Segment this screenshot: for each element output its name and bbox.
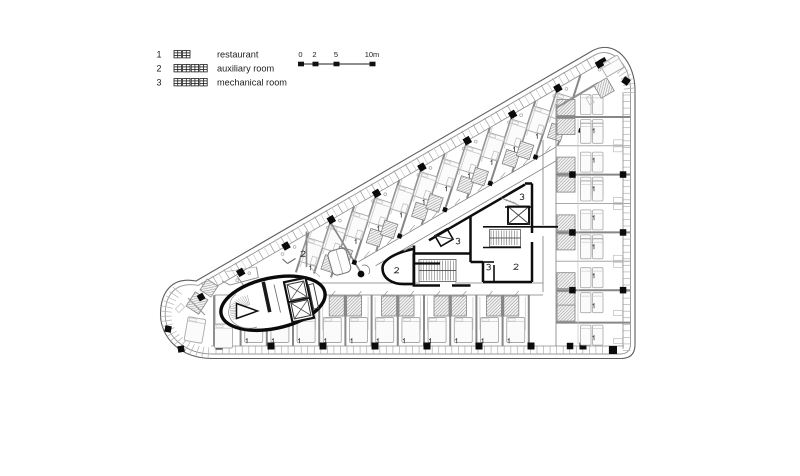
svg-text:mechanical room: mechanical room xyxy=(217,78,287,88)
svg-text:1: 1 xyxy=(156,50,161,60)
svg-text:restaurant: restaurant xyxy=(217,50,259,60)
svg-text:2: 2 xyxy=(312,50,316,59)
svg-text:5: 5 xyxy=(334,50,338,59)
svg-text:10m: 10m xyxy=(365,50,380,59)
svg-text:auxiliary room: auxiliary room xyxy=(217,64,275,74)
svg-text:3: 3 xyxy=(156,78,161,88)
svg-text:0: 0 xyxy=(298,50,302,59)
svg-text:2: 2 xyxy=(156,64,161,74)
